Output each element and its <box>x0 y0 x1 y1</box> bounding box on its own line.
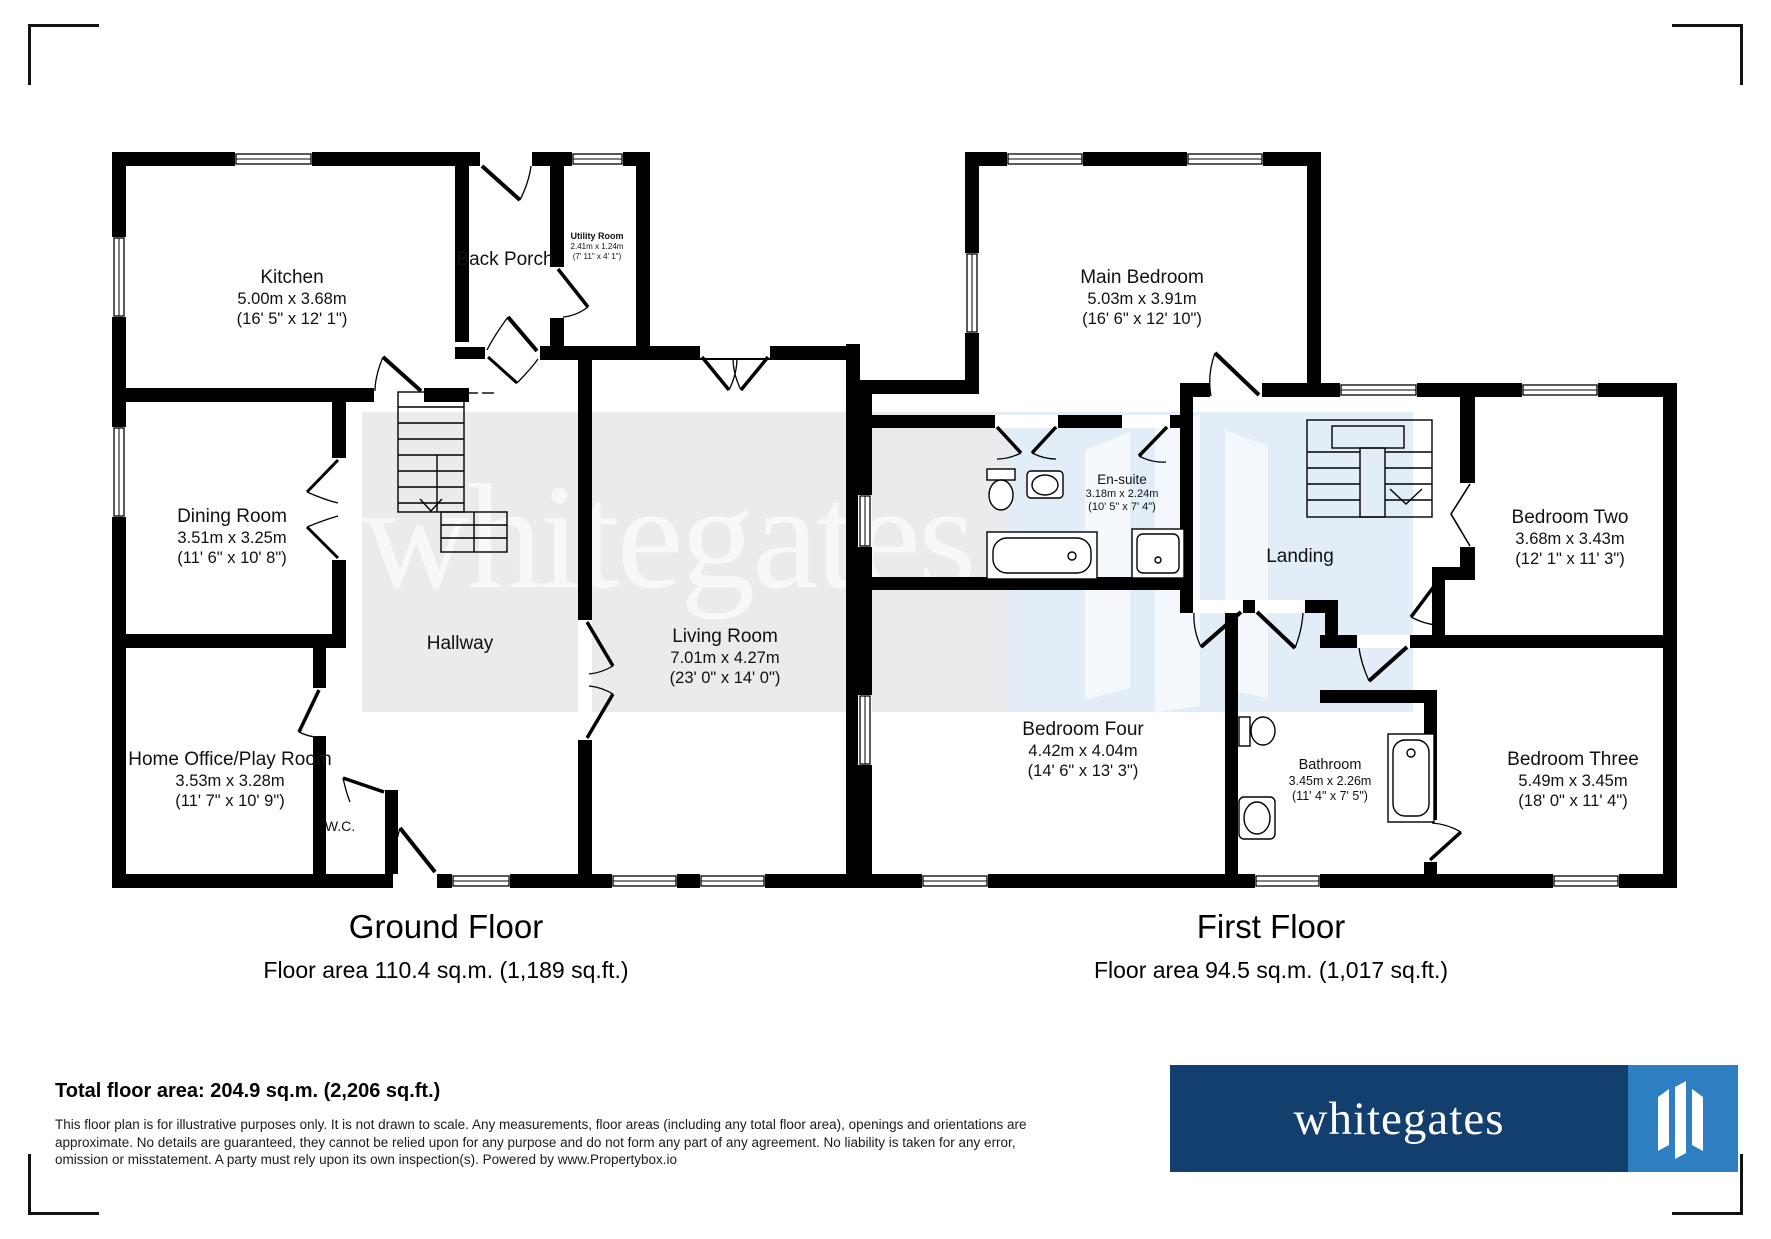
room-name: En-suite <box>1086 471 1159 488</box>
room-label-ensuite: En-suite 3.18m x 2.24m (10' 5" x 7' 4") <box>1086 471 1159 514</box>
floorplan-drawing <box>0 0 1771 1239</box>
room-name: Living Room <box>670 625 781 648</box>
room-imperial: (10' 5" x 7' 4") <box>1086 501 1159 514</box>
bathtub-icon <box>1388 734 1434 822</box>
room-name: Main Bedroom <box>1080 266 1204 289</box>
room-imperial: (16' 6" x 12' 10") <box>1080 309 1204 329</box>
room-name: Kitchen <box>237 266 348 289</box>
room-imperial: (11' 4" x 7' 5") <box>1289 789 1372 804</box>
room-name: Bedroom Four <box>1022 718 1143 741</box>
room-name: W.C. <box>325 818 355 834</box>
sink-icon <box>1239 797 1275 839</box>
room-label-bedroom-two: Bedroom Two 3.68m x 3.43m (12' 1" x 11' … <box>1512 506 1629 569</box>
room-metric: 3.45m x 2.26m <box>1289 774 1372 789</box>
room-imperial: (11' 7" x 10' 9") <box>128 791 331 811</box>
ground-stairs-icon <box>398 392 507 552</box>
toilet-icon <box>987 469 1015 510</box>
room-imperial: (16' 5" x 12' 1") <box>237 309 348 329</box>
room-label-bedroom-three: Bedroom Three 5.49m x 3.45m (18' 0" x 11… <box>1507 748 1639 811</box>
shower-icon <box>1132 529 1184 578</box>
room-metric: 3.68m x 3.43m <box>1512 529 1629 549</box>
disclaimer-line: omission or misstatement. A party must r… <box>55 1151 1027 1169</box>
room-imperial: (11' 6" x 10' 8") <box>177 548 287 568</box>
whitegates-logo: whitegates <box>1170 1065 1738 1172</box>
room-name: Landing <box>1266 545 1334 568</box>
room-label-utility: Utility Room 2.41m x 1.24m (7' 11" x 4' … <box>571 231 624 262</box>
room-metric: 2.41m x 1.24m <box>571 242 624 252</box>
room-metric: 5.03m x 3.91m <box>1080 289 1204 309</box>
first-floor-area: Floor area 94.5 sq.m. (1,017 sq.ft.) <box>1094 957 1448 984</box>
room-label-wc: W.C. <box>325 818 355 834</box>
room-metric: 3.18m x 2.24m <box>1086 488 1159 501</box>
room-metric: 5.00m x 3.68m <box>237 289 348 309</box>
logo-wordmark: whitegates <box>1294 1092 1505 1146</box>
logo-wordmark-box: whitegates <box>1170 1065 1628 1172</box>
room-name: Home Office/Play Room <box>128 748 331 771</box>
room-imperial: (18' 0" x 11' 4") <box>1507 791 1639 811</box>
room-imperial: (7' 11" x 4' 1") <box>571 252 624 262</box>
corner-mark-bottom-left <box>28 1154 99 1215</box>
room-metric: 3.53m x 3.28m <box>128 771 331 791</box>
room-label-back-porch: Back Porch <box>456 248 553 271</box>
room-imperial: (23' 0" x 14' 0") <box>670 668 781 688</box>
room-label-kitchen: Kitchen 5.00m x 3.68m (16' 5" x 12' 1") <box>237 266 348 329</box>
room-metric: 5.49m x 3.45m <box>1507 771 1639 791</box>
corner-mark-bottom-right <box>1672 1154 1743 1215</box>
bathtub-icon <box>987 532 1097 579</box>
corner-mark-top-right <box>1672 24 1743 85</box>
room-name: Dining Room <box>177 505 287 528</box>
room-name: Hallway <box>427 632 494 655</box>
room-name: Back Porch <box>456 248 553 271</box>
room-label-landing: Landing <box>1266 545 1334 568</box>
total-floor-area: Total floor area: 204.9 sq.m. (2,206 sq.… <box>55 1080 440 1103</box>
disclaimer-line: This floor plan is for illustrative purp… <box>55 1116 1027 1134</box>
room-label-hallway: Hallway <box>427 632 494 655</box>
room-metric: 3.51m x 3.25m <box>177 528 287 548</box>
room-label-dining: Dining Room 3.51m x 3.25m (11' 6" x 10' … <box>177 505 287 568</box>
room-name: Bedroom Two <box>1512 506 1629 529</box>
room-label-bathroom: Bathroom 3.45m x 2.26m (11' 4" x 7' 5") <box>1289 756 1372 804</box>
ground-floor-area: Floor area 110.4 sq.m. (1,189 sq.ft.) <box>263 957 628 984</box>
sink-icon <box>1027 471 1063 498</box>
room-metric: 4.42m x 4.04m <box>1022 741 1143 761</box>
room-imperial: (14' 6" x 13' 3") <box>1022 761 1143 781</box>
room-label-home-office: Home Office/Play Room 3.53m x 3.28m (11'… <box>128 748 331 811</box>
disclaimer-text: This floor plan is for illustrative purp… <box>55 1116 1027 1169</box>
toilet-icon <box>1239 717 1275 746</box>
first-stairs-icon <box>1307 420 1432 517</box>
room-label-main-bedroom: Main Bedroom 5.03m x 3.91m (16' 6" x 12'… <box>1080 266 1204 329</box>
room-imperial: (12' 1" x 11' 3") <box>1512 549 1629 569</box>
corner-mark-top-left <box>28 24 99 85</box>
room-name: Bathroom <box>1289 756 1372 774</box>
room-name: Bedroom Three <box>1507 748 1639 771</box>
first-floor-title: First Floor <box>1197 908 1346 946</box>
room-label-bedroom-four: Bedroom Four 4.42m x 4.04m (14' 6" x 13'… <box>1022 718 1143 781</box>
ground-floor-title: Ground Floor <box>349 908 543 946</box>
room-name: Utility Room <box>571 231 624 242</box>
disclaimer-line: approximate. No details are guaranteed, … <box>55 1134 1027 1152</box>
floorplan-page: whitegates <box>0 0 1771 1239</box>
room-label-living: Living Room 7.01m x 4.27m (23' 0" x 14' … <box>670 625 781 688</box>
room-metric: 7.01m x 4.27m <box>670 648 781 668</box>
